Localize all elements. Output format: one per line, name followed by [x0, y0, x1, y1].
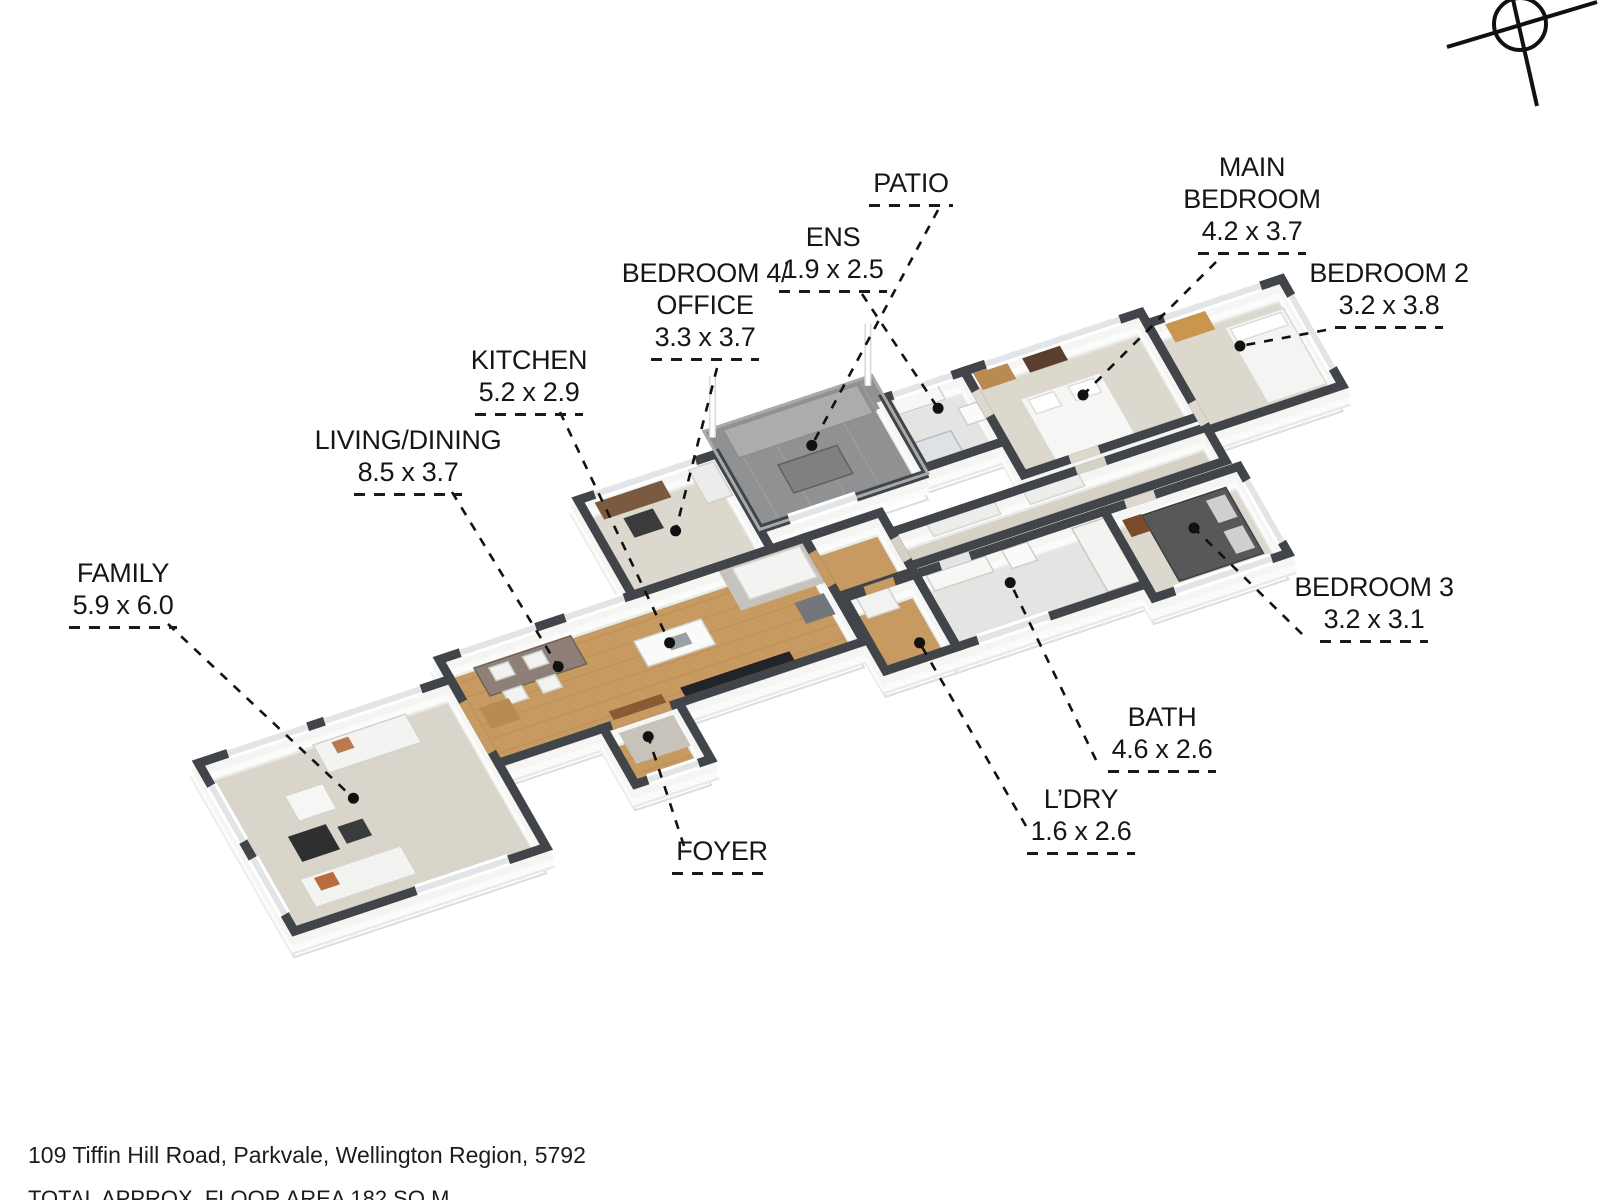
compass-icon — [1420, 0, 1600, 130]
floorplan-page: FAMILY5.9 x 6.0LIVING/DINING8.5 x 3.7KIT… — [0, 0, 1600, 1200]
floor-area-text: TOTAL APPROX. FLOOR AREA 182 SQ M — [28, 1186, 449, 1200]
floorplan-3d-view — [0, 0, 1600, 1200]
address-text: 109 Tiffin Hill Road, Parkvale, Wellingt… — [28, 1142, 586, 1169]
